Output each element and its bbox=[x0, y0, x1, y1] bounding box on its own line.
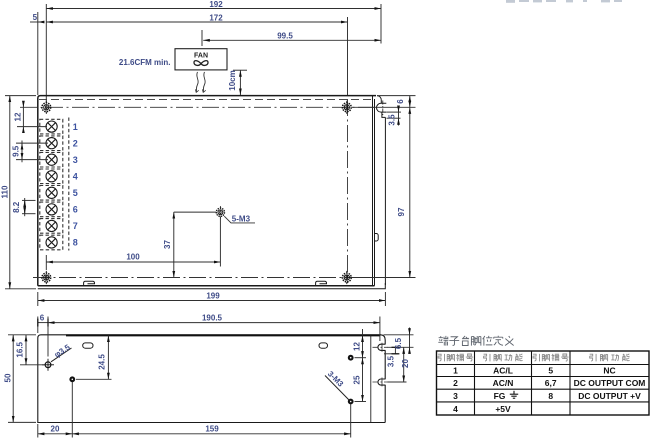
svg-text:6.5: 6.5 bbox=[394, 337, 403, 349]
svg-text:6,7: 6,7 bbox=[545, 378, 557, 388]
svg-text:10cm: 10cm bbox=[228, 70, 237, 90]
svg-text:20: 20 bbox=[51, 424, 60, 433]
svg-text:20: 20 bbox=[401, 359, 410, 368]
svg-text:21.6CFM min.: 21.6CFM min. bbox=[119, 58, 171, 67]
svg-text:9.5: 9.5 bbox=[12, 145, 21, 157]
svg-text:199: 199 bbox=[206, 292, 220, 301]
svg-text:100: 100 bbox=[126, 252, 140, 261]
svg-text:3: 3 bbox=[453, 391, 458, 401]
svg-text:FAN: FAN bbox=[194, 53, 208, 60]
svg-text:8.2: 8.2 bbox=[12, 201, 21, 213]
svg-text:DC OUTPUT +V: DC OUTPUT +V bbox=[578, 391, 641, 401]
svg-text:25: 25 bbox=[352, 375, 361, 384]
svg-text:5: 5 bbox=[548, 366, 553, 376]
svg-text:AC/L: AC/L bbox=[493, 366, 513, 376]
svg-text:AC/N: AC/N bbox=[493, 378, 514, 388]
svg-text:16.5: 16.5 bbox=[16, 341, 25, 357]
svg-text:6: 6 bbox=[73, 205, 78, 215]
svg-text:172: 172 bbox=[209, 13, 223, 22]
svg-text:3.5: 3.5 bbox=[388, 114, 397, 126]
svg-text:1: 1 bbox=[73, 122, 78, 132]
svg-text:97: 97 bbox=[397, 207, 406, 216]
svg-text:2: 2 bbox=[73, 138, 78, 148]
svg-text:6: 6 bbox=[40, 313, 45, 322]
svg-text:3.5: 3.5 bbox=[387, 355, 396, 367]
svg-text:8: 8 bbox=[73, 238, 78, 248]
svg-text:4: 4 bbox=[73, 171, 78, 181]
svg-text:DC OUTPUT COM: DC OUTPUT COM bbox=[574, 378, 646, 388]
svg-text:7: 7 bbox=[73, 221, 78, 231]
svg-text:φ3.5: φ3.5 bbox=[53, 342, 72, 359]
svg-text:8: 8 bbox=[548, 391, 553, 401]
svg-text:4: 4 bbox=[453, 404, 458, 414]
svg-text:12: 12 bbox=[352, 342, 361, 351]
svg-text:50: 50 bbox=[4, 373, 13, 382]
svg-text:12: 12 bbox=[14, 112, 23, 121]
svg-text:2: 2 bbox=[453, 378, 458, 388]
svg-text:192: 192 bbox=[209, 0, 223, 9]
svg-text:+5V: +5V bbox=[495, 404, 511, 414]
svg-text:FG: FG bbox=[494, 391, 506, 401]
svg-text:37: 37 bbox=[163, 240, 172, 249]
svg-text:NC: NC bbox=[603, 366, 615, 376]
svg-text:5-M3: 5-M3 bbox=[232, 215, 251, 224]
svg-text:190.5: 190.5 bbox=[202, 313, 223, 322]
svg-text:99.5: 99.5 bbox=[277, 32, 293, 41]
svg-text:1: 1 bbox=[453, 366, 458, 376]
svg-text:159: 159 bbox=[205, 424, 219, 433]
svg-text:3: 3 bbox=[73, 155, 78, 165]
svg-text:5: 5 bbox=[33, 13, 38, 22]
svg-text:6: 6 bbox=[396, 99, 405, 104]
svg-text:24.5: 24.5 bbox=[98, 354, 107, 370]
svg-text:110: 110 bbox=[1, 185, 10, 198]
svg-text:5: 5 bbox=[73, 188, 78, 198]
